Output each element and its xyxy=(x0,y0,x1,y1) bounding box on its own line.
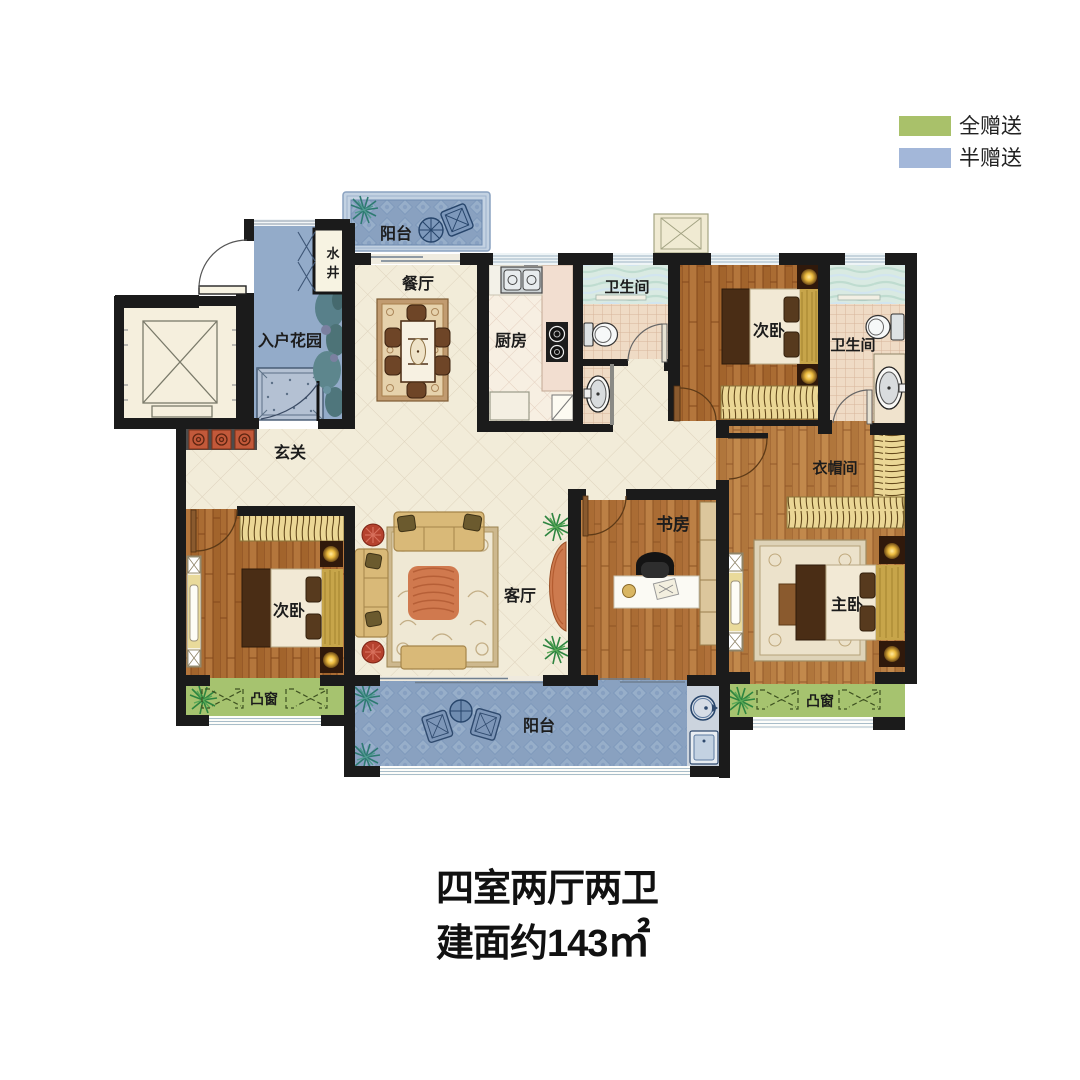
svg-text:入户花园: 入户花园 xyxy=(258,331,322,350)
svg-text:全赠送: 全赠送 xyxy=(959,115,1022,138)
svg-text:主卧: 主卧 xyxy=(831,595,863,614)
svg-text:书房: 书房 xyxy=(656,514,690,534)
svg-text:建面约143㎡: 建面约143㎡ xyxy=(436,917,650,966)
svg-text:四室两厅两卫: 四室两厅两卫 xyxy=(436,867,658,910)
svg-text:次卧: 次卧 xyxy=(273,601,305,620)
svg-text:玄关: 玄关 xyxy=(274,443,306,462)
svg-text:卫生间: 卫生间 xyxy=(830,336,875,354)
svg-text:凸窗: 凸窗 xyxy=(250,691,278,707)
svg-text:客厅: 客厅 xyxy=(504,586,536,605)
svg-text:厨房: 厨房 xyxy=(495,331,527,350)
svg-text:衣帽间: 衣帽间 xyxy=(812,459,857,477)
svg-text:次卧: 次卧 xyxy=(753,321,785,340)
svg-text:阳台: 阳台 xyxy=(380,224,412,243)
svg-text:卫生间: 卫生间 xyxy=(604,278,649,296)
svg-text:阳台: 阳台 xyxy=(523,716,555,735)
svg-text:餐厅: 餐厅 xyxy=(401,274,434,293)
svg-text:半赠送: 半赠送 xyxy=(959,147,1022,170)
svg-text:水: 水 xyxy=(326,246,340,261)
svg-text:井: 井 xyxy=(326,265,339,280)
svg-text:凸窗: 凸窗 xyxy=(806,693,834,709)
